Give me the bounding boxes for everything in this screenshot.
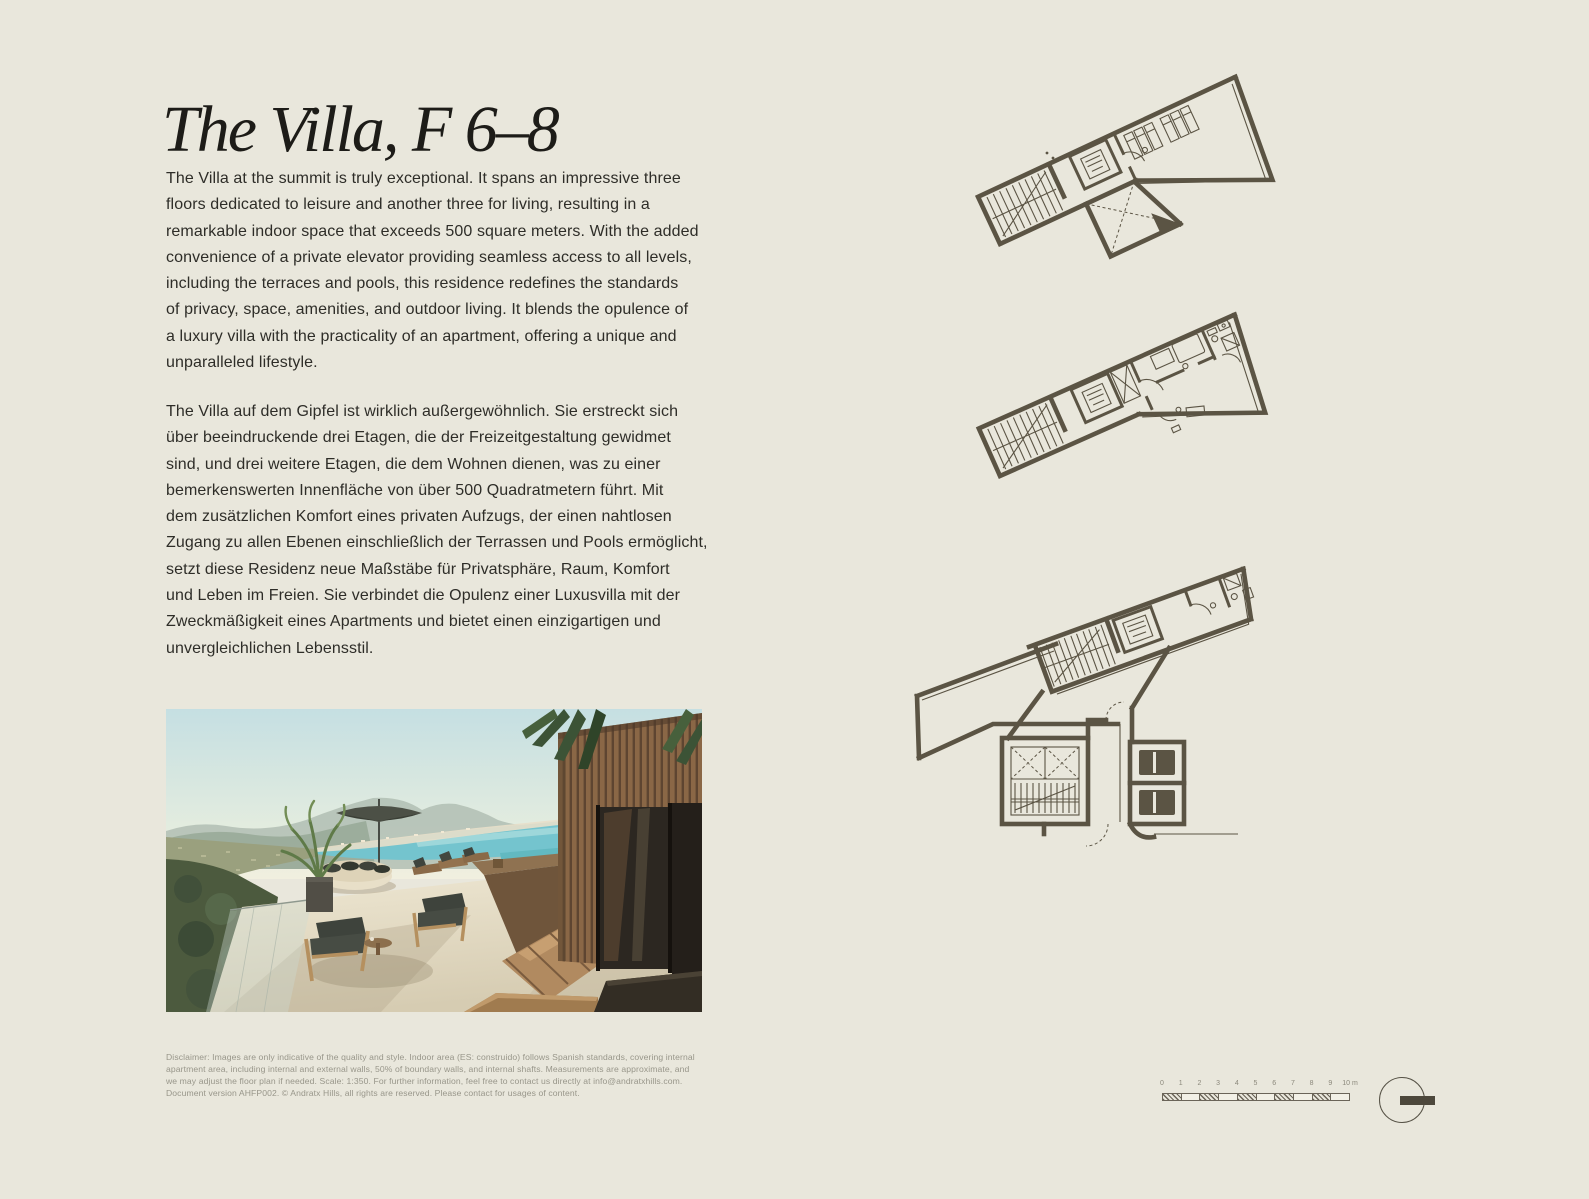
scale-label: 4 xyxy=(1235,1080,1239,1087)
photo-building xyxy=(558,713,702,975)
scale-label: 0 xyxy=(1160,1080,1164,1087)
brochure-page: The Villa, F 6–8 The Villa at the summit… xyxy=(0,0,1589,1199)
scale-label: 3 xyxy=(1216,1080,1220,1087)
terrace-photo-image xyxy=(166,709,702,1012)
description-english: The Villa at the summit is truly excepti… xyxy=(166,166,786,376)
floor-plan-lower-level xyxy=(896,522,1286,854)
floor-plan-middle-level xyxy=(992,312,1292,504)
scale-label: 10 m xyxy=(1342,1080,1358,1087)
description-german: The Villa auf dem Gipfel ist wirklich au… xyxy=(166,399,786,662)
scale-label: 8 xyxy=(1310,1080,1314,1087)
scale-label: 6 xyxy=(1272,1080,1276,1087)
floor-plan-top-level xyxy=(998,74,1294,279)
scale-bar-labels: 0 1 2 3 4 5 6 7 8 9 10 m xyxy=(1162,1080,1350,1090)
scale-label: 1 xyxy=(1179,1080,1183,1087)
terrace-photo xyxy=(166,709,702,1012)
page-title: The Villa, F 6–8 xyxy=(162,92,558,168)
scale-label: 2 xyxy=(1197,1080,1201,1087)
compass-needle-icon xyxy=(1400,1096,1435,1105)
scale-bar-segments xyxy=(1162,1093,1350,1101)
scale-label: 5 xyxy=(1254,1080,1258,1087)
scale-label: 9 xyxy=(1328,1080,1332,1087)
north-orientation-icon xyxy=(1379,1077,1425,1123)
disclaimer-text: Disclaimer: Images are only indicative o… xyxy=(166,1051,746,1100)
scale-bar: 0 1 2 3 4 5 6 7 8 9 10 m xyxy=(1162,1080,1350,1101)
scale-label: 7 xyxy=(1291,1080,1295,1087)
